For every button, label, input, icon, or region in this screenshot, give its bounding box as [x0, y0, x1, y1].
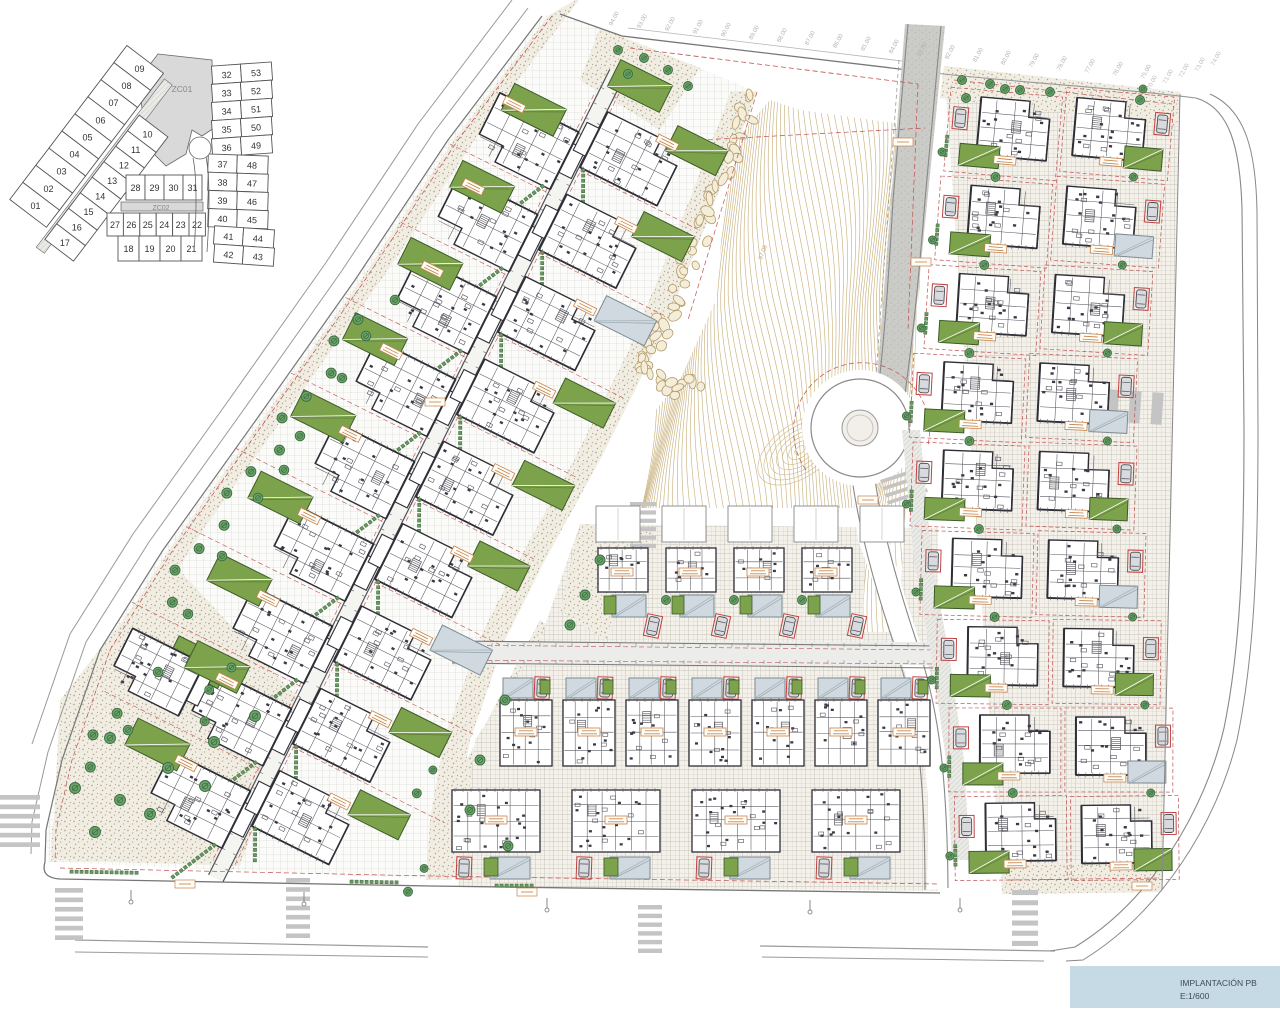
svg-text:41: 41: [223, 231, 234, 242]
svg-text:44: 44: [253, 233, 264, 244]
svg-text:29: 29: [149, 183, 159, 193]
svg-text:17: 17: [60, 238, 70, 248]
svg-text:35: 35: [221, 124, 232, 135]
svg-text:12: 12: [119, 161, 129, 171]
svg-text:47: 47: [247, 179, 257, 189]
svg-text:13: 13: [107, 176, 117, 186]
svg-text:03: 03: [56, 167, 66, 177]
svg-text:53: 53: [251, 68, 262, 79]
svg-text:21: 21: [186, 244, 196, 254]
svg-text:38: 38: [217, 177, 227, 187]
svg-text:14: 14: [95, 192, 105, 202]
svg-text:33: 33: [221, 88, 232, 99]
svg-text:32: 32: [221, 70, 232, 81]
svg-text:34: 34: [221, 106, 232, 117]
svg-text:23: 23: [176, 220, 186, 230]
svg-text:48: 48: [247, 160, 257, 170]
svg-text:18: 18: [123, 244, 133, 254]
svg-text:24: 24: [159, 220, 169, 230]
svg-text:01: 01: [30, 201, 40, 211]
svg-text:ZC02: ZC02: [152, 205, 169, 212]
svg-text:49: 49: [251, 140, 262, 151]
svg-text:43: 43: [253, 252, 264, 263]
svg-text:25: 25: [143, 220, 153, 230]
svg-text:16: 16: [72, 223, 82, 233]
svg-text:27: 27: [110, 220, 120, 230]
svg-text:39: 39: [217, 196, 227, 206]
svg-text:10: 10: [142, 130, 152, 140]
svg-text:45: 45: [247, 215, 257, 225]
svg-text:28: 28: [130, 183, 140, 193]
svg-text:11: 11: [131, 145, 140, 155]
svg-text:36: 36: [221, 143, 232, 154]
svg-text:22: 22: [192, 220, 202, 230]
svg-text:20: 20: [165, 244, 175, 254]
svg-text:05: 05: [82, 133, 92, 143]
svg-text:09: 09: [134, 64, 144, 74]
svg-text:IMPLANTACIÓN PB: IMPLANTACIÓN PB: [1180, 978, 1257, 988]
svg-text:40: 40: [217, 214, 227, 224]
svg-text:08: 08: [121, 81, 131, 91]
svg-text:30: 30: [168, 183, 178, 193]
svg-text:07: 07: [108, 98, 118, 108]
svg-text:E:1/600: E:1/600: [1180, 991, 1210, 1001]
svg-text:42: 42: [223, 250, 234, 261]
svg-text:06: 06: [95, 115, 105, 125]
svg-text:ZC01: ZC01: [172, 84, 193, 94]
svg-text:26: 26: [126, 220, 136, 230]
svg-text:37: 37: [217, 159, 227, 169]
svg-text:46: 46: [247, 197, 257, 207]
svg-text:19: 19: [144, 244, 154, 254]
svg-text:51: 51: [251, 104, 262, 115]
svg-text:15: 15: [83, 207, 93, 217]
svg-text:50: 50: [251, 122, 262, 133]
svg-text:02: 02: [43, 184, 53, 194]
svg-text:52: 52: [251, 86, 262, 97]
svg-text:04: 04: [69, 150, 79, 160]
